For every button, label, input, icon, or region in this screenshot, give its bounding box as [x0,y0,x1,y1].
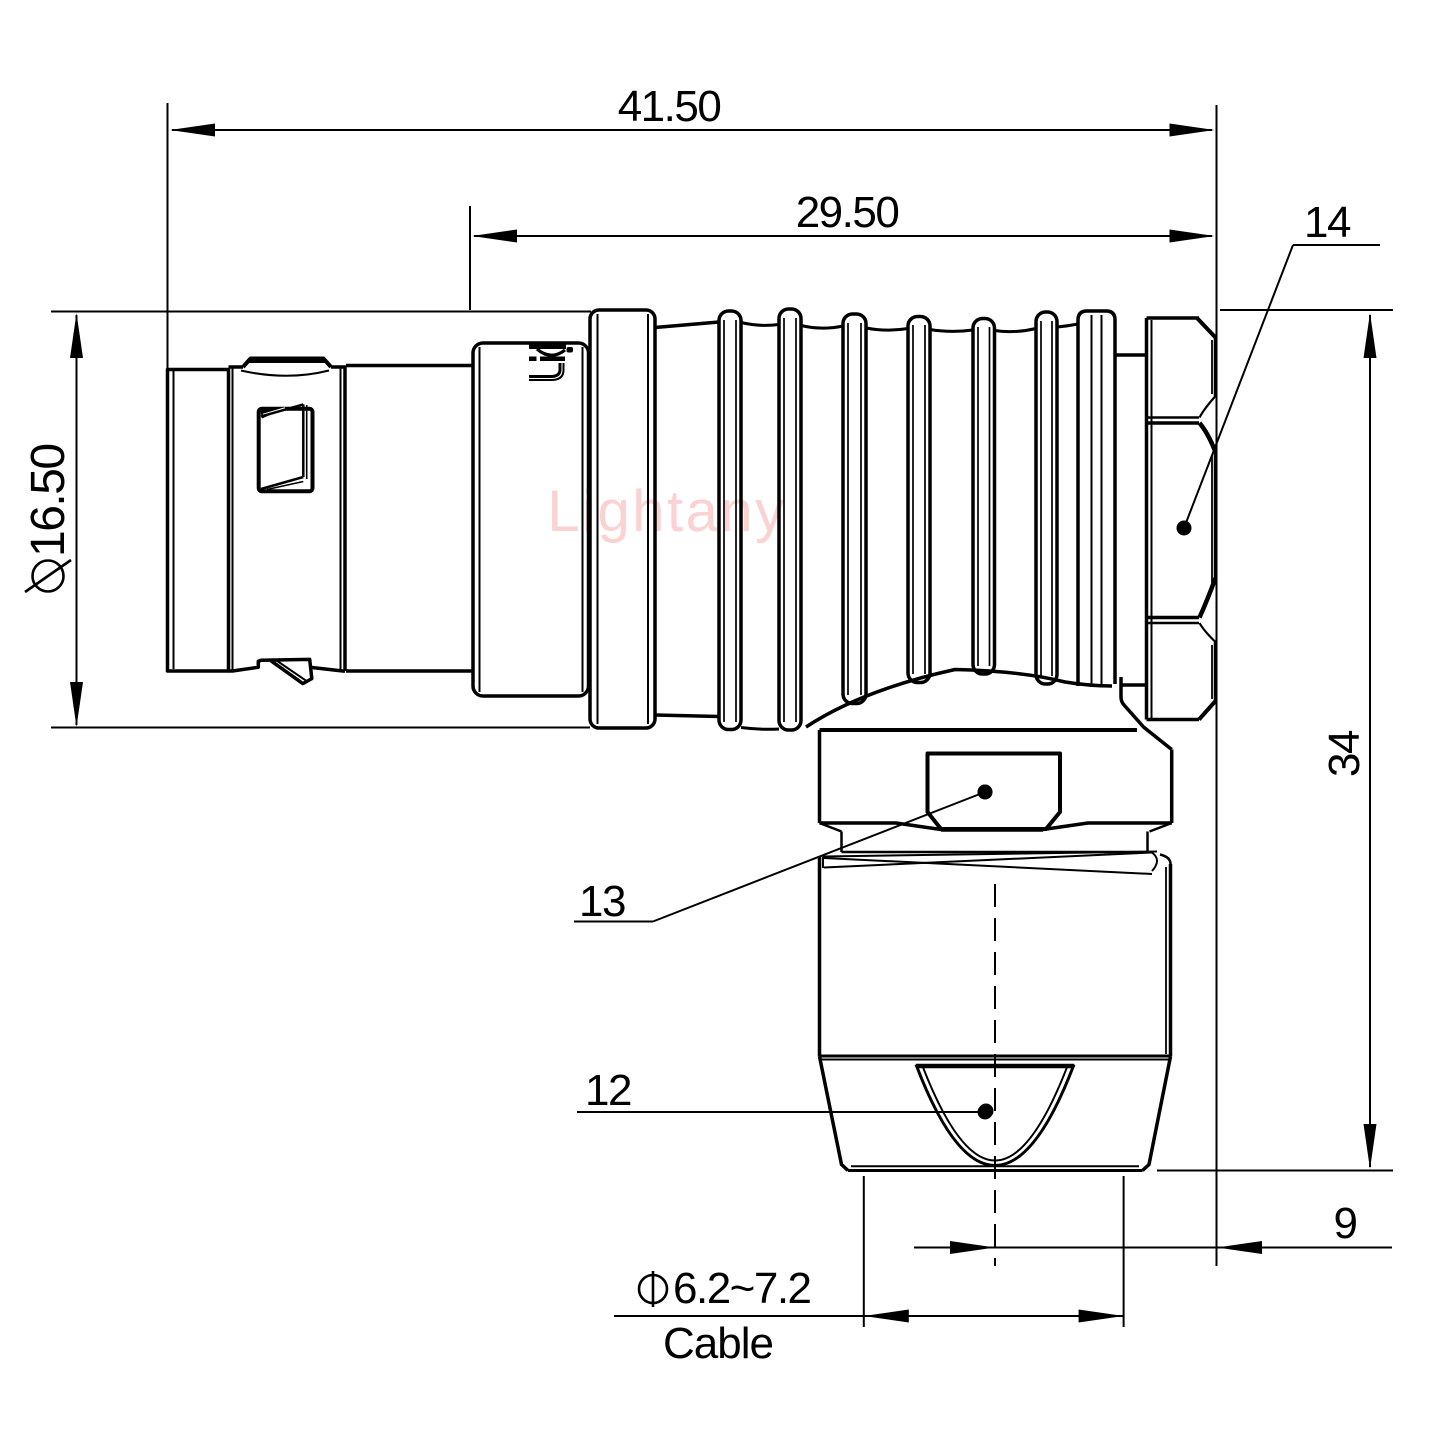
svg-text:9: 9 [1334,1199,1357,1248]
svg-text:6.2~7.2: 6.2~7.2 [673,1264,811,1313]
svg-text:12: 12 [585,1066,631,1115]
svg-text:41.50: 41.50 [618,82,721,131]
svg-text:14: 14 [1304,198,1351,247]
svg-text:Cable: Cable [663,1319,773,1368]
svg-text:34: 34 [1320,730,1369,777]
svg-text:16.50: 16.50 [22,444,75,557]
svg-text:29.50: 29.50 [796,188,899,237]
svg-text:13: 13 [579,877,625,926]
